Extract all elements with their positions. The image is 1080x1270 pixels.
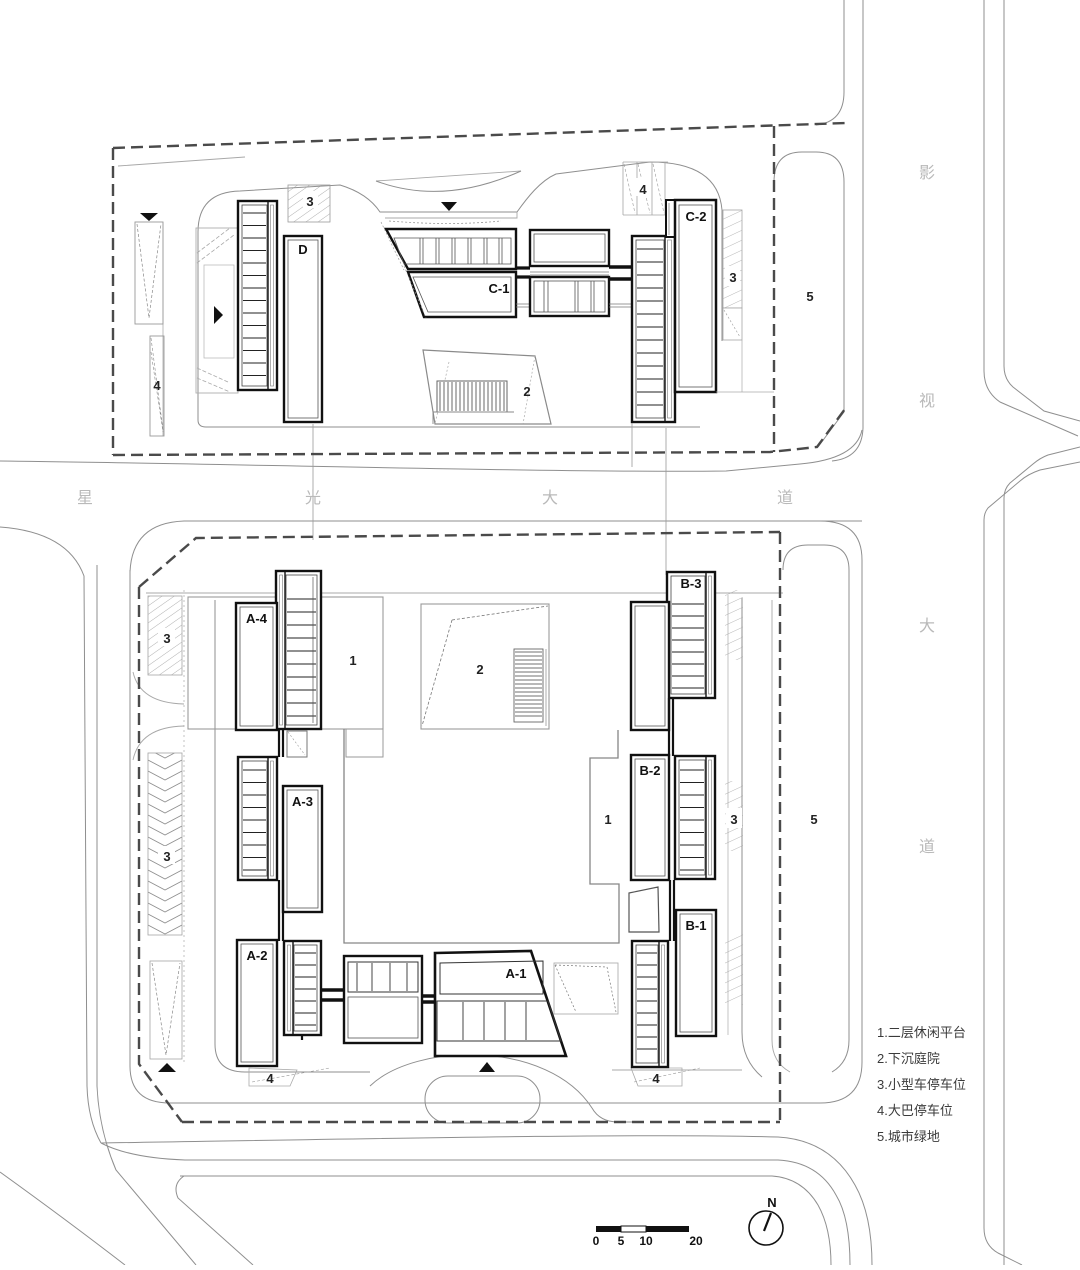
svg-text:C-1: C-1	[489, 281, 510, 296]
svg-text:5: 5	[810, 812, 817, 827]
svg-text:大: 大	[542, 489, 558, 507]
svg-text:10: 10	[639, 1234, 653, 1248]
svg-text:A-3: A-3	[292, 794, 313, 809]
svg-text:星: 星	[77, 490, 93, 507]
svg-text:C-2: C-2	[686, 209, 707, 224]
svg-text:20: 20	[689, 1234, 703, 1248]
svg-text:B-3: B-3	[681, 576, 702, 591]
svg-text:3: 3	[163, 849, 170, 864]
svg-text:A-4: A-4	[246, 611, 268, 626]
svg-text:视: 视	[919, 392, 935, 410]
svg-text:5: 5	[806, 289, 813, 304]
svg-text:道: 道	[919, 838, 935, 856]
svg-text:B-2: B-2	[640, 763, 661, 778]
svg-text:A-1: A-1	[506, 966, 527, 981]
svg-text:4.大巴停车位: 4.大巴停车位	[877, 1103, 953, 1118]
svg-text:4: 4	[639, 182, 647, 197]
svg-text:4: 4	[652, 1071, 660, 1086]
svg-text:2: 2	[476, 662, 483, 677]
svg-text:3.小型车停车位: 3.小型车停车位	[877, 1077, 966, 1092]
svg-text:大: 大	[919, 617, 935, 635]
svg-text:A-2: A-2	[247, 948, 268, 963]
svg-text:道: 道	[777, 489, 793, 507]
svg-text:3: 3	[729, 270, 736, 285]
svg-text:B-1: B-1	[686, 918, 707, 933]
svg-text:影: 影	[919, 164, 935, 182]
svg-text:1.二层休闲平台: 1.二层休闲平台	[877, 1025, 966, 1040]
svg-text:0: 0	[593, 1234, 600, 1248]
svg-text:5: 5	[618, 1234, 625, 1248]
svg-text:2: 2	[523, 384, 530, 399]
svg-text:1: 1	[604, 812, 611, 827]
svg-text:3: 3	[163, 631, 170, 646]
svg-text:2.下沉庭院: 2.下沉庭院	[877, 1051, 940, 1066]
svg-text:4: 4	[266, 1071, 274, 1086]
svg-text:D: D	[298, 242, 307, 257]
svg-text:4: 4	[153, 378, 161, 393]
svg-text:1: 1	[349, 653, 356, 668]
svg-text:5.城市绿地: 5.城市绿地	[877, 1129, 940, 1144]
svg-text:N: N	[767, 1195, 776, 1210]
svg-text:3: 3	[730, 812, 737, 827]
svg-text:光: 光	[305, 489, 321, 507]
svg-text:3: 3	[306, 194, 313, 209]
